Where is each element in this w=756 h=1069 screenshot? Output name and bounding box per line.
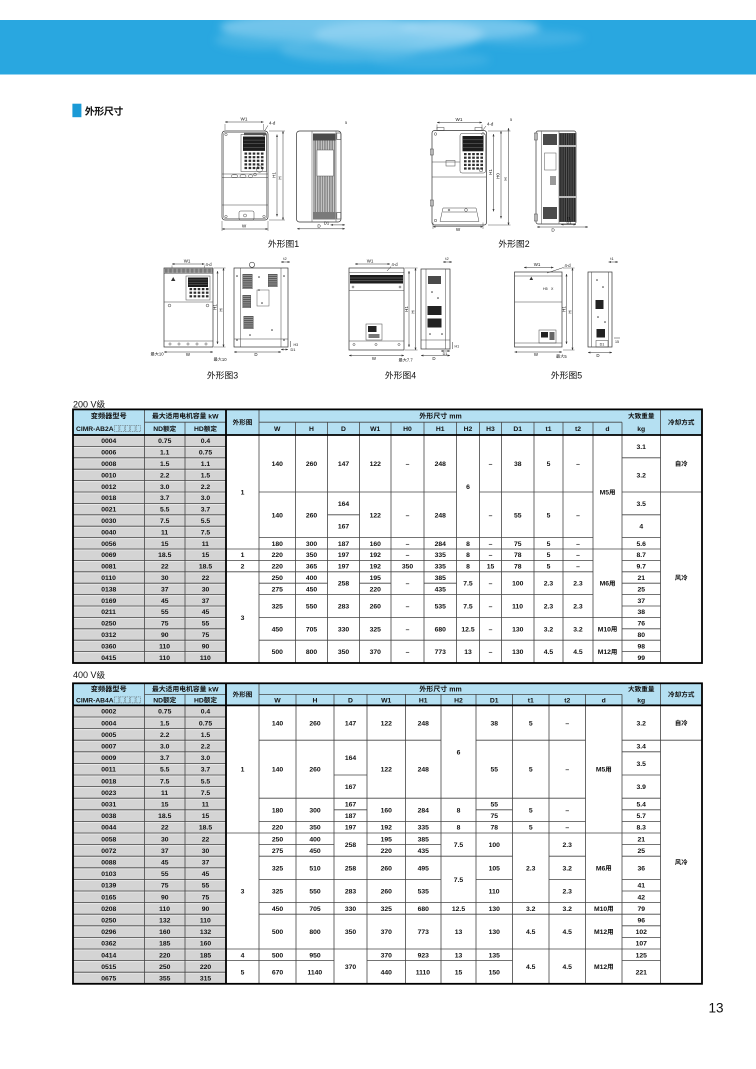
svg-text:W1: W1 bbox=[456, 117, 463, 122]
svg-text:6: 6 bbox=[457, 749, 461, 756]
svg-text:140: 140 bbox=[272, 767, 284, 774]
svg-text:5.5: 5.5 bbox=[201, 518, 211, 525]
svg-text:t1: t1 bbox=[610, 256, 613, 261]
svg-text:kW: kW bbox=[206, 686, 219, 693]
svg-text:H5: H5 bbox=[543, 287, 548, 291]
svg-text:3.2: 3.2 bbox=[563, 906, 573, 913]
svg-text:H: H bbox=[278, 176, 283, 179]
svg-text:330: 330 bbox=[345, 906, 357, 913]
svg-text:H0: H0 bbox=[496, 173, 501, 179]
svg-text:5.5: 5.5 bbox=[160, 767, 170, 774]
svg-text:3.2: 3.2 bbox=[637, 472, 647, 479]
svg-text:1.5: 1.5 bbox=[160, 720, 170, 727]
svg-text:195: 195 bbox=[381, 836, 393, 843]
svg-text:283: 283 bbox=[345, 888, 357, 895]
svg-text:300: 300 bbox=[309, 807, 321, 814]
svg-text:M5: M5 bbox=[600, 489, 610, 496]
svg-text:160: 160 bbox=[381, 807, 393, 814]
svg-text:–: – bbox=[406, 541, 410, 548]
svg-text:4.5: 4.5 bbox=[573, 649, 583, 656]
svg-text:0250: 0250 bbox=[101, 917, 116, 924]
svg-text:3.0: 3.0 bbox=[201, 755, 211, 762]
svg-text:0250: 0250 bbox=[101, 621, 116, 628]
svg-text:75: 75 bbox=[202, 894, 210, 901]
svg-text:4-d: 4-d bbox=[206, 262, 213, 267]
svg-text:45: 45 bbox=[202, 871, 210, 878]
svg-text:–: – bbox=[489, 649, 493, 656]
svg-text:220: 220 bbox=[272, 825, 284, 832]
svg-text:350: 350 bbox=[309, 825, 321, 832]
svg-text:–: – bbox=[489, 461, 493, 468]
svg-text:25: 25 bbox=[637, 586, 645, 593]
svg-text:325: 325 bbox=[370, 626, 382, 633]
svg-text:7.5: 7.5 bbox=[463, 603, 473, 610]
svg-text:450: 450 bbox=[272, 906, 284, 913]
svg-text:284: 284 bbox=[435, 541, 447, 548]
svg-text:0675: 0675 bbox=[101, 975, 116, 982]
svg-text:D1: D1 bbox=[567, 220, 572, 225]
svg-text:21: 21 bbox=[637, 836, 645, 843]
svg-text:0030: 0030 bbox=[101, 518, 116, 525]
svg-text:0058: 0058 bbox=[101, 836, 116, 843]
svg-text:107: 107 bbox=[636, 941, 648, 948]
svg-text:400: 400 bbox=[309, 836, 321, 843]
svg-text:248: 248 bbox=[418, 720, 430, 727]
svg-text:4.5: 4.5 bbox=[526, 929, 536, 936]
svg-text:0296: 0296 bbox=[101, 929, 116, 936]
svg-text:H3: H3 bbox=[486, 426, 495, 433]
svg-text:d: d bbox=[605, 426, 609, 433]
svg-text:–: – bbox=[565, 825, 569, 832]
svg-text:1.5: 1.5 bbox=[160, 461, 170, 468]
svg-text:H: H bbox=[503, 177, 508, 180]
svg-text:350: 350 bbox=[402, 564, 414, 571]
svg-text:99: 99 bbox=[637, 655, 645, 662]
svg-text:7.5: 7.5 bbox=[463, 581, 473, 588]
svg-text:d: d bbox=[602, 697, 606, 704]
svg-text:800: 800 bbox=[309, 929, 321, 936]
svg-text:130: 130 bbox=[512, 626, 524, 633]
svg-text:11: 11 bbox=[202, 541, 209, 548]
svg-text:36: 36 bbox=[637, 865, 645, 872]
svg-text:96: 96 bbox=[637, 917, 645, 924]
svg-text:55: 55 bbox=[161, 871, 169, 878]
svg-text:75: 75 bbox=[490, 813, 498, 820]
svg-text:7.7: 7.7 bbox=[407, 358, 413, 363]
svg-text:11: 11 bbox=[202, 801, 209, 808]
svg-text:t2: t2 bbox=[564, 697, 570, 704]
svg-text:315: 315 bbox=[200, 975, 212, 982]
svg-text:164: 164 bbox=[345, 755, 357, 762]
svg-text:21: 21 bbox=[637, 575, 645, 582]
svg-text:H1: H1 bbox=[488, 169, 493, 175]
svg-text:7.5: 7.5 bbox=[160, 778, 170, 785]
svg-text:8: 8 bbox=[466, 552, 470, 559]
svg-text:3.7: 3.7 bbox=[160, 495, 170, 502]
svg-text:370: 370 bbox=[381, 952, 393, 959]
svg-text:22: 22 bbox=[202, 836, 210, 843]
svg-text:258: 258 bbox=[338, 581, 350, 588]
svg-text:110: 110 bbox=[159, 655, 170, 662]
svg-text:8: 8 bbox=[466, 541, 470, 548]
svg-text:7.5: 7.5 bbox=[201, 529, 211, 536]
svg-text:D1: D1 bbox=[291, 347, 296, 352]
svg-text:13: 13 bbox=[464, 649, 472, 656]
svg-text:D1: D1 bbox=[324, 221, 330, 226]
svg-text:37: 37 bbox=[637, 598, 645, 605]
svg-text:M6: M6 bbox=[596, 865, 606, 872]
svg-text:78: 78 bbox=[490, 825, 498, 832]
svg-text:4.5: 4.5 bbox=[563, 929, 573, 936]
svg-text:76: 76 bbox=[637, 621, 645, 628]
svg-text:167: 167 bbox=[345, 801, 357, 808]
svg-text:3: 3 bbox=[241, 615, 245, 622]
svg-text:–: – bbox=[576, 541, 580, 548]
svg-text:260: 260 bbox=[306, 512, 318, 519]
svg-text:132: 132 bbox=[200, 929, 212, 936]
svg-text:100: 100 bbox=[489, 842, 501, 849]
svg-text:135: 135 bbox=[489, 952, 501, 959]
svg-text:325: 325 bbox=[272, 888, 284, 895]
svg-text:1.1: 1.1 bbox=[160, 450, 170, 457]
svg-text:98: 98 bbox=[637, 643, 645, 650]
svg-text:38: 38 bbox=[514, 461, 522, 468]
svg-text:3.7: 3.7 bbox=[201, 767, 211, 774]
svg-text:W1: W1 bbox=[370, 426, 380, 433]
svg-text:2.2: 2.2 bbox=[160, 472, 170, 479]
svg-text:258: 258 bbox=[345, 842, 357, 849]
svg-text:H: H bbox=[309, 426, 314, 433]
svg-text:2.3: 2.3 bbox=[573, 603, 583, 610]
svg-text:160: 160 bbox=[159, 929, 171, 936]
svg-text:100: 100 bbox=[512, 581, 524, 588]
svg-text:–: – bbox=[489, 581, 493, 588]
svg-text:90: 90 bbox=[202, 906, 210, 913]
svg-text:75: 75 bbox=[514, 541, 522, 548]
svg-text:–: – bbox=[576, 564, 580, 571]
svg-text:4.5: 4.5 bbox=[563, 964, 573, 971]
svg-text:167: 167 bbox=[345, 784, 357, 791]
svg-text:140: 140 bbox=[272, 720, 284, 727]
svg-text:–: – bbox=[406, 552, 410, 559]
svg-text:680: 680 bbox=[435, 626, 447, 633]
svg-text:260: 260 bbox=[370, 603, 382, 610]
svg-text:0004: 0004 bbox=[101, 720, 116, 727]
svg-text:3.4: 3.4 bbox=[637, 743, 647, 750]
svg-text:283: 283 bbox=[338, 603, 350, 610]
svg-text:220: 220 bbox=[159, 952, 171, 959]
svg-text:D: D bbox=[254, 352, 257, 357]
svg-text:5: 5 bbox=[529, 807, 533, 814]
svg-text:15: 15 bbox=[455, 970, 463, 977]
svg-text:350: 350 bbox=[338, 649, 350, 656]
svg-text:0008: 0008 bbox=[101, 461, 116, 468]
svg-text:–: – bbox=[576, 461, 580, 468]
svg-text:55: 55 bbox=[490, 767, 498, 774]
svg-text:192: 192 bbox=[370, 564, 382, 571]
svg-text:355: 355 bbox=[159, 975, 171, 982]
svg-text:195: 195 bbox=[370, 575, 382, 582]
svg-text:0007: 0007 bbox=[101, 743, 116, 750]
svg-text:275: 275 bbox=[272, 848, 284, 855]
svg-text:D1: D1 bbox=[513, 426, 522, 433]
svg-text:11: 11 bbox=[161, 529, 168, 536]
svg-text:13: 13 bbox=[708, 1001, 723, 1016]
svg-text:220: 220 bbox=[370, 586, 382, 593]
svg-text:350: 350 bbox=[345, 929, 357, 936]
svg-text:164: 164 bbox=[338, 501, 350, 508]
svg-text:D: D bbox=[596, 353, 599, 358]
svg-text:22: 22 bbox=[161, 564, 169, 571]
svg-text:1: 1 bbox=[241, 489, 245, 496]
svg-text:W1: W1 bbox=[367, 259, 374, 264]
svg-text:0169: 0169 bbox=[101, 598, 116, 605]
svg-text:M12: M12 bbox=[594, 929, 607, 936]
svg-text:2.3: 2.3 bbox=[544, 603, 554, 610]
svg-text:30: 30 bbox=[202, 586, 210, 593]
svg-text:0069: 0069 bbox=[101, 552, 116, 559]
svg-text:30: 30 bbox=[161, 575, 169, 582]
svg-text:110: 110 bbox=[159, 906, 170, 913]
svg-text:mm: mm bbox=[447, 413, 461, 420]
svg-text:7.5: 7.5 bbox=[454, 877, 464, 884]
svg-text:192: 192 bbox=[381, 825, 393, 832]
svg-text:–: – bbox=[565, 807, 569, 814]
svg-text:3.2: 3.2 bbox=[526, 906, 536, 913]
svg-text:11: 11 bbox=[161, 790, 168, 797]
svg-text:450: 450 bbox=[272, 626, 284, 633]
svg-text:220: 220 bbox=[272, 552, 284, 559]
svg-text:5.5: 5.5 bbox=[201, 778, 211, 785]
svg-text:75: 75 bbox=[202, 632, 210, 639]
svg-text:D1: D1 bbox=[600, 343, 605, 347]
svg-text:4.5: 4.5 bbox=[544, 649, 554, 656]
svg-text:0.75: 0.75 bbox=[199, 450, 212, 457]
svg-text:90: 90 bbox=[202, 643, 210, 650]
svg-text:45: 45 bbox=[161, 859, 169, 866]
svg-text:kg: kg bbox=[637, 426, 645, 433]
svg-text:2: 2 bbox=[241, 564, 245, 571]
svg-text:923: 923 bbox=[418, 952, 430, 959]
svg-text:1: 1 bbox=[241, 552, 245, 559]
svg-text:t1: t1 bbox=[528, 697, 534, 704]
svg-text:2.3: 2.3 bbox=[544, 581, 554, 588]
svg-text:1: 1 bbox=[241, 767, 245, 774]
svg-text:260: 260 bbox=[309, 767, 321, 774]
svg-text:3.7: 3.7 bbox=[201, 507, 211, 514]
svg-text:55: 55 bbox=[514, 512, 522, 519]
svg-text:140: 140 bbox=[272, 512, 284, 519]
svg-text:M12: M12 bbox=[594, 964, 607, 971]
svg-text:3: 3 bbox=[233, 370, 238, 380]
svg-text:18.5: 18.5 bbox=[158, 813, 171, 820]
svg-text:78: 78 bbox=[514, 564, 522, 571]
svg-text:197: 197 bbox=[338, 552, 350, 559]
svg-text:8: 8 bbox=[457, 825, 461, 832]
svg-text:335: 335 bbox=[418, 825, 430, 832]
svg-text:0044: 0044 bbox=[101, 825, 116, 832]
svg-text:3.5: 3.5 bbox=[637, 501, 647, 508]
svg-text:250: 250 bbox=[272, 836, 284, 843]
svg-text:M10: M10 bbox=[598, 626, 611, 633]
svg-text:2.2: 2.2 bbox=[160, 732, 170, 739]
svg-text:D: D bbox=[348, 697, 353, 704]
svg-text:37: 37 bbox=[161, 586, 169, 593]
svg-text:–: – bbox=[489, 603, 493, 610]
svg-text:8.7: 8.7 bbox=[637, 552, 647, 559]
svg-text:3.1: 3.1 bbox=[637, 444, 647, 451]
svg-text:5: 5 bbox=[529, 720, 533, 727]
svg-text:t1: t1 bbox=[545, 426, 551, 433]
svg-text:5: 5 bbox=[345, 121, 347, 125]
svg-text:3.2: 3.2 bbox=[544, 626, 554, 633]
svg-text:10: 10 bbox=[222, 357, 227, 362]
svg-text:30: 30 bbox=[202, 848, 210, 855]
svg-text:5.7: 5.7 bbox=[637, 813, 647, 820]
svg-text:4: 4 bbox=[639, 524, 643, 531]
svg-text:7.5: 7.5 bbox=[160, 518, 170, 525]
svg-text:185: 185 bbox=[200, 952, 212, 959]
svg-text:0.4: 0.4 bbox=[201, 438, 211, 445]
svg-text:3.2: 3.2 bbox=[573, 626, 583, 633]
svg-text:7.5: 7.5 bbox=[454, 842, 464, 849]
svg-text:0208: 0208 bbox=[101, 906, 116, 913]
svg-text:ND: ND bbox=[153, 426, 163, 433]
svg-text:110: 110 bbox=[489, 888, 500, 895]
svg-text:–: – bbox=[406, 461, 410, 468]
svg-text:0103: 0103 bbox=[101, 871, 116, 878]
svg-text:200 V: 200 V bbox=[73, 399, 97, 409]
svg-text:300: 300 bbox=[306, 541, 318, 548]
svg-text:37: 37 bbox=[202, 598, 210, 605]
svg-text:550: 550 bbox=[309, 888, 321, 895]
svg-text:4: 4 bbox=[241, 952, 245, 959]
svg-text:15: 15 bbox=[202, 813, 210, 820]
svg-text:0138: 0138 bbox=[101, 586, 116, 593]
svg-text:130: 130 bbox=[512, 649, 524, 656]
svg-text:350: 350 bbox=[306, 552, 318, 559]
svg-text:0.75: 0.75 bbox=[158, 709, 171, 716]
svg-text:1140: 1140 bbox=[307, 970, 322, 977]
svg-text:H1: H1 bbox=[212, 304, 217, 310]
svg-text:–: – bbox=[489, 541, 493, 548]
svg-text:385: 385 bbox=[418, 836, 430, 843]
svg-text:4: 4 bbox=[411, 370, 416, 380]
svg-text:0021: 0021 bbox=[101, 507, 116, 514]
svg-text:385: 385 bbox=[435, 575, 447, 582]
svg-text:–: – bbox=[565, 767, 569, 774]
svg-text:H1: H1 bbox=[561, 306, 566, 312]
svg-text:3: 3 bbox=[241, 888, 245, 895]
svg-text:0.75: 0.75 bbox=[158, 438, 171, 445]
svg-text:0360: 0360 bbox=[101, 643, 116, 650]
svg-text:4.5: 4.5 bbox=[526, 964, 536, 971]
svg-text:370: 370 bbox=[345, 964, 357, 971]
svg-text:5: 5 bbox=[547, 461, 551, 468]
svg-text:160: 160 bbox=[370, 541, 382, 548]
svg-text:H1: H1 bbox=[436, 426, 445, 433]
svg-text:3.2: 3.2 bbox=[563, 865, 573, 872]
svg-text:950: 950 bbox=[309, 952, 321, 959]
svg-text:130: 130 bbox=[489, 906, 501, 913]
svg-text:15: 15 bbox=[161, 541, 169, 548]
svg-text:500: 500 bbox=[272, 929, 284, 936]
svg-text:370: 370 bbox=[381, 929, 393, 936]
svg-text:–: – bbox=[565, 720, 569, 727]
svg-text:450: 450 bbox=[309, 848, 321, 855]
svg-text:W1: W1 bbox=[534, 262, 541, 267]
svg-text:W: W bbox=[274, 697, 281, 704]
svg-text:HD: HD bbox=[194, 697, 204, 704]
svg-text:680: 680 bbox=[418, 906, 430, 913]
svg-text:335: 335 bbox=[435, 552, 447, 559]
svg-text:0031: 0031 bbox=[101, 801, 116, 808]
svg-text:773: 773 bbox=[418, 929, 430, 936]
svg-text:W1: W1 bbox=[381, 697, 391, 704]
svg-text:90: 90 bbox=[161, 894, 169, 901]
svg-text:18.5: 18.5 bbox=[199, 564, 212, 571]
svg-text:275: 275 bbox=[272, 586, 284, 593]
svg-text:4-d: 4-d bbox=[487, 121, 494, 126]
svg-text:510: 510 bbox=[309, 865, 321, 872]
svg-text:–: – bbox=[489, 512, 493, 519]
svg-text:1: 1 bbox=[294, 239, 299, 249]
svg-text:260: 260 bbox=[381, 888, 393, 895]
svg-text:0040: 0040 bbox=[101, 529, 116, 536]
svg-text:132: 132 bbox=[159, 917, 171, 924]
svg-text:0165: 0165 bbox=[101, 894, 116, 901]
svg-text:HD: HD bbox=[194, 426, 204, 433]
svg-text:0012: 0012 bbox=[101, 484, 116, 491]
svg-text:400 V: 400 V bbox=[73, 670, 97, 680]
svg-text:105: 105 bbox=[489, 865, 501, 872]
svg-text:2.3: 2.3 bbox=[563, 842, 573, 849]
svg-text:221: 221 bbox=[636, 970, 648, 977]
svg-text:150: 150 bbox=[489, 970, 501, 977]
svg-text:670: 670 bbox=[272, 970, 284, 977]
svg-text:3.2: 3.2 bbox=[637, 720, 647, 727]
svg-text:3.9: 3.9 bbox=[637, 784, 647, 791]
svg-text:37: 37 bbox=[161, 848, 169, 855]
svg-text:705: 705 bbox=[309, 906, 321, 913]
svg-text:–: – bbox=[406, 626, 410, 633]
svg-text:t2: t2 bbox=[445, 256, 448, 261]
svg-text:0009: 0009 bbox=[101, 755, 116, 762]
svg-text:30: 30 bbox=[161, 836, 169, 843]
svg-text:5.6: 5.6 bbox=[637, 541, 647, 548]
svg-text:0211: 0211 bbox=[101, 609, 116, 616]
svg-text:5.5: 5.5 bbox=[160, 507, 170, 514]
svg-text:325: 325 bbox=[381, 906, 393, 913]
svg-text:D1: D1 bbox=[443, 352, 448, 356]
svg-text:122: 122 bbox=[370, 461, 382, 468]
svg-text:435: 435 bbox=[435, 586, 447, 593]
svg-text:55: 55 bbox=[202, 883, 210, 890]
svg-text:–: – bbox=[406, 581, 410, 588]
svg-text:0415: 0415 bbox=[101, 655, 116, 662]
svg-text:79: 79 bbox=[637, 906, 645, 913]
svg-text:–: – bbox=[406, 649, 410, 656]
svg-text:187: 187 bbox=[345, 813, 357, 820]
svg-text:13: 13 bbox=[455, 952, 463, 959]
svg-text:H: H bbox=[313, 697, 318, 704]
svg-text:330: 330 bbox=[338, 626, 350, 633]
svg-text:122: 122 bbox=[370, 512, 382, 519]
svg-text:D1: D1 bbox=[490, 697, 499, 704]
svg-text:78: 78 bbox=[514, 552, 522, 559]
svg-text:185: 185 bbox=[159, 941, 171, 948]
svg-text:5: 5 bbox=[529, 767, 533, 774]
